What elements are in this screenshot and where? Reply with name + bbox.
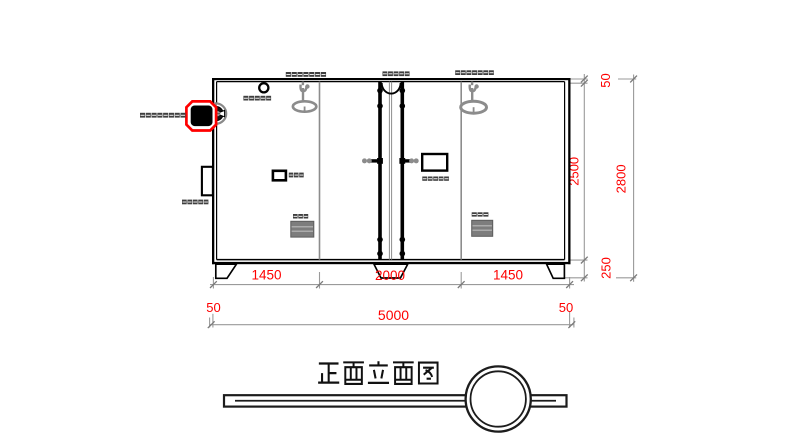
svg-text:2800: 2800 — [613, 164, 628, 193]
svg-text:1450: 1450 — [493, 267, 523, 282]
svg-text:50: 50 — [206, 300, 220, 315]
svg-text:50: 50 — [559, 300, 573, 315]
svg-text:1450: 1450 — [251, 267, 281, 282]
svg-text:5000: 5000 — [378, 307, 409, 323]
svg-text:50: 50 — [598, 73, 613, 87]
svg-text:2000: 2000 — [375, 268, 405, 283]
svg-text:250: 250 — [599, 257, 614, 279]
